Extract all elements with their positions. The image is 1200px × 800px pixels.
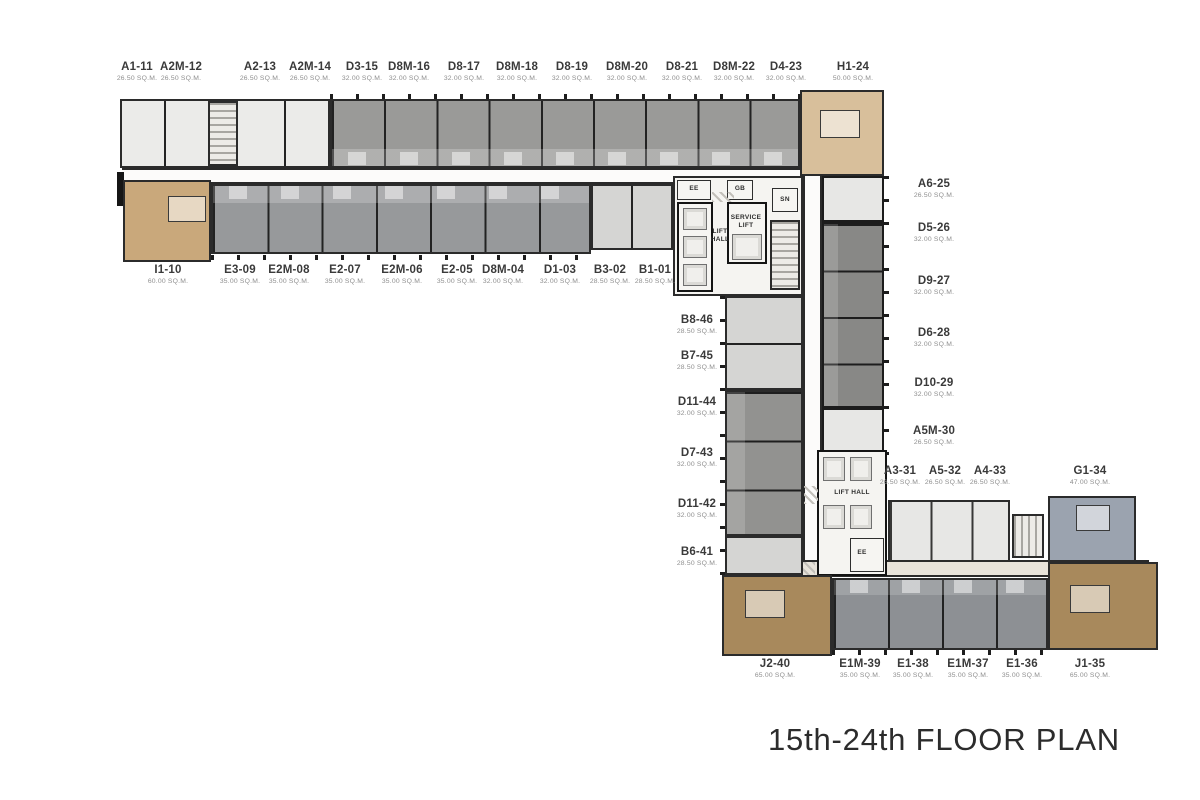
- balcony-ticks-mid: [720, 296, 725, 575]
- unit-area: 32.00 SQ.M.: [713, 75, 755, 82]
- unit-block-a6: [822, 176, 884, 222]
- unit-block-d-right: [822, 222, 884, 408]
- unit-label-D8-19: D8-1932.00 SQ.M.: [552, 61, 592, 82]
- unit-label-A6-25: A6-2526.50 SQ.M.: [914, 178, 954, 199]
- unit-id: E2-05: [437, 264, 477, 276]
- unit-label-J1-35: J1-3565.00 SQ.M.: [1070, 658, 1110, 679]
- unit-id: A2M-14: [289, 61, 331, 73]
- unit-id: A5M-30: [913, 425, 955, 437]
- unit-block-b6: [725, 536, 803, 575]
- unit-label-D4-23: D4-2332.00 SQ.M.: [766, 61, 806, 82]
- unit-area: 32.00 SQ.M.: [914, 289, 954, 296]
- unit-label-B3-02: B3-0228.50 SQ.M.: [590, 264, 630, 285]
- unit-area: 65.00 SQ.M.: [1070, 672, 1110, 679]
- unit-id: A1-11: [117, 61, 157, 73]
- unit-area: 32.00 SQ.M.: [606, 75, 648, 82]
- unit-label-E2M-06: E2M-0635.00 SQ.M.: [381, 264, 422, 285]
- unit-id: E1M-37: [947, 658, 988, 670]
- unit-area: 26.50 SQ.M.: [913, 439, 955, 446]
- unit-area: 32.00 SQ.M.: [677, 461, 717, 468]
- unit-label-D6-28: D6-2832.00 SQ.M.: [914, 327, 954, 348]
- unit-label-D8M-04: D8M-0432.00 SQ.M.: [482, 264, 524, 285]
- service-lift-car: [732, 234, 762, 260]
- unit-area: 35.00 SQ.M.: [381, 278, 422, 285]
- unit-id: D9-27: [914, 275, 954, 287]
- lift-car: [823, 505, 845, 529]
- bathroom-row-second: [213, 186, 589, 199]
- unit-area: 32.00 SQ.M.: [914, 341, 954, 348]
- lift-car: [850, 457, 872, 481]
- lift-hall-lower-label: LIFT HALL: [834, 489, 870, 497]
- unit-label-D3-15: D3-1532.00 SQ.M.: [342, 61, 382, 82]
- balcony-ticks-second: [211, 255, 591, 260]
- unit-label-D5-26: D5-2632.00 SQ.M.: [914, 222, 954, 243]
- unit-area: 26.50 SQ.M.: [880, 479, 920, 486]
- unit-area: 32.00 SQ.M.: [914, 391, 954, 398]
- unit-label-D8M-18: D8M-1832.00 SQ.M.: [496, 61, 538, 82]
- unit-id: E2-07: [325, 264, 365, 276]
- unit-label-D8-17: D8-1732.00 SQ.M.: [444, 61, 484, 82]
- gb-label: GB: [735, 185, 745, 193]
- unit-label-D10-29: D10-2932.00 SQ.M.: [914, 377, 954, 398]
- unit-area: 35.00 SQ.M.: [220, 278, 260, 285]
- unit-area: 32.00 SQ.M.: [444, 75, 484, 82]
- unit-area: 26.50 SQ.M.: [240, 75, 280, 82]
- unit-area: 32.00 SQ.M.: [677, 512, 717, 519]
- unit-id: E3-09: [220, 264, 260, 276]
- unit-label-D8M-20: D8M-2032.00 SQ.M.: [606, 61, 648, 82]
- unit-label-E2-05: E2-0535.00 SQ.M.: [437, 264, 477, 285]
- sn-label: SN: [780, 196, 790, 204]
- bathroom-row-top: [332, 152, 798, 165]
- unit-id: D8M-20: [606, 61, 648, 73]
- unit-id: I1-10: [148, 264, 188, 276]
- lift-car: [823, 457, 845, 481]
- unit-id: E2M-08: [268, 264, 309, 276]
- unit-id: E1M-39: [839, 658, 880, 670]
- unit-label-B8-46: B8-4628.50 SQ.M.: [677, 314, 717, 335]
- lift-car: [683, 264, 707, 286]
- service-lift-label: SERVICE LIFT: [729, 214, 763, 231]
- unit-id: A3-31: [880, 465, 920, 477]
- unit-id: B8-46: [677, 314, 717, 326]
- corridor-hatch-core: [804, 486, 818, 504]
- ee-upper-label: EE: [689, 185, 698, 193]
- unit-id: D8M-04: [482, 264, 524, 276]
- unit-area: 26.50 SQ.M.: [914, 192, 954, 199]
- unit-area: 35.00 SQ.M.: [325, 278, 365, 285]
- unit-label-D9-27: D9-2732.00 SQ.M.: [914, 275, 954, 296]
- unit-label-A3-31: A3-3126.50 SQ.M.: [880, 465, 920, 486]
- unit-label-D1-03: D1-0332.00 SQ.M.: [540, 264, 580, 285]
- unit-label-E1-38: E1-3835.00 SQ.M.: [893, 658, 933, 679]
- unit-id: A2M-12: [160, 61, 202, 73]
- balcony-ticks-right: [884, 176, 889, 455]
- unit-divider: [727, 343, 801, 345]
- unit-id: D7-43: [677, 447, 717, 459]
- unit-id: D11-44: [677, 396, 717, 408]
- unit-label-E1M-37: E1M-3735.00 SQ.M.: [947, 658, 988, 679]
- unit-label-E1M-39: E1M-3935.00 SQ.M.: [839, 658, 880, 679]
- stairwell-top-icon: [208, 101, 238, 166]
- unit-id: A5-32: [925, 465, 965, 477]
- unit-area: 32.00 SQ.M.: [482, 278, 524, 285]
- unit-id: J2-40: [755, 658, 795, 670]
- unit-id: D1-03: [540, 264, 580, 276]
- unit-block-a5m: [822, 408, 884, 455]
- unit-label-D8-21: D8-2132.00 SQ.M.: [662, 61, 702, 82]
- unit-area: 32.00 SQ.M.: [496, 75, 538, 82]
- unit-divider: [631, 186, 633, 248]
- unit-id: A4-33: [970, 465, 1010, 477]
- unit-label-G1-34: G1-3447.00 SQ.M.: [1070, 465, 1110, 486]
- unit-area: 32.00 SQ.M.: [677, 410, 717, 417]
- unit-area: 28.50 SQ.M.: [590, 278, 630, 285]
- unit-area: 28.50 SQ.M.: [677, 364, 717, 371]
- unit-label-A5M-30: A5M-3026.50 SQ.M.: [913, 425, 955, 446]
- unit-id: D8-17: [444, 61, 484, 73]
- unit-id: J1-35: [1070, 658, 1110, 670]
- unit-label-B1-01: B1-0128.50 SQ.M.: [635, 264, 675, 285]
- unit-id: D5-26: [914, 222, 954, 234]
- unit-label-J2-40: J2-4065.00 SQ.M.: [755, 658, 795, 679]
- unit-label-B7-45: B7-4528.50 SQ.M.: [677, 350, 717, 371]
- bathroom-row-bottom: [834, 580, 1046, 593]
- unit-area: 28.50 SQ.M.: [677, 328, 717, 335]
- unit-id: G1-34: [1070, 465, 1110, 477]
- unit-label-D8M-22: D8M-2232.00 SQ.M.: [713, 61, 755, 82]
- unit-block-a3-row: [888, 500, 1010, 562]
- unit-label-E2M-08: E2M-0835.00 SQ.M.: [268, 264, 309, 285]
- lift-car: [683, 208, 707, 230]
- unit-label-A1-11: A1-1126.50 SQ.M.: [117, 61, 157, 82]
- unit-area: 26.50 SQ.M.: [925, 479, 965, 486]
- interior-wall: [1070, 585, 1110, 613]
- unit-block-d-mid: [725, 390, 803, 536]
- unit-label-D7-43: D7-4332.00 SQ.M.: [677, 447, 717, 468]
- unit-label-D8M-16: D8M-1632.00 SQ.M.: [388, 61, 430, 82]
- unit-area: 32.00 SQ.M.: [552, 75, 592, 82]
- unit-area: 35.00 SQ.M.: [947, 672, 988, 679]
- unit-divider: [164, 101, 166, 166]
- unit-area: 32.00 SQ.M.: [766, 75, 806, 82]
- unit-area: 32.00 SQ.M.: [540, 278, 580, 285]
- unit-id: D8M-18: [496, 61, 538, 73]
- unit-label-D11-44: D11-4432.00 SQ.M.: [677, 396, 717, 417]
- ee-lower-label: EE: [857, 549, 866, 557]
- unit-area: 50.00 SQ.M.: [833, 75, 873, 82]
- unit-area: 32.00 SQ.M.: [342, 75, 382, 82]
- floor-plan-canvas: EE GB SN SERVICE LIFT LIFT HALL LIFT HAL…: [0, 0, 1200, 800]
- balcony-ticks-bottom: [832, 650, 1048, 655]
- unit-area: 47.00 SQ.M.: [1070, 479, 1110, 486]
- unit-id: E1-36: [1002, 658, 1042, 670]
- unit-area: 32.00 SQ.M.: [388, 75, 430, 82]
- interior-wall: [745, 590, 785, 618]
- unit-id: B3-02: [590, 264, 630, 276]
- unit-area: 35.00 SQ.M.: [1002, 672, 1042, 679]
- page-title: 15th-24th FLOOR PLAN: [768, 722, 1120, 758]
- interior-wall: [168, 196, 206, 222]
- unit-id: D8M-22: [713, 61, 755, 73]
- unit-id: B6-41: [677, 546, 717, 558]
- unit-id: D10-29: [914, 377, 954, 389]
- unit-divider: [284, 101, 286, 166]
- unit-area: 26.50 SQ.M.: [160, 75, 202, 82]
- unit-label-E2-07: E2-0735.00 SQ.M.: [325, 264, 365, 285]
- unit-id: B1-01: [635, 264, 675, 276]
- ee-room-lower: [850, 538, 884, 572]
- unit-area: 65.00 SQ.M.: [755, 672, 795, 679]
- stairwell-core-icon: [770, 220, 800, 290]
- unit-id: D8M-16: [388, 61, 430, 73]
- unit-id: B7-45: [677, 350, 717, 362]
- unit-label-H1-24: H1-2450.00 SQ.M.: [833, 61, 873, 82]
- unit-area: 26.50 SQ.M.: [289, 75, 331, 82]
- interior-wall: [1076, 505, 1110, 531]
- unit-id: D11-42: [677, 498, 717, 510]
- stairwell-lower-icon: [1012, 514, 1044, 558]
- interior-wall: [820, 110, 860, 138]
- unit-area: 35.00 SQ.M.: [893, 672, 933, 679]
- lift-hall-upper-label: LIFT HALL: [707, 228, 733, 245]
- unit-id: E1-38: [893, 658, 933, 670]
- unit-area: 60.00 SQ.M.: [148, 278, 188, 285]
- unit-label-A4-33: A4-3326.50 SQ.M.: [970, 465, 1010, 486]
- unit-id: D4-23: [766, 61, 806, 73]
- unit-id: H1-24: [833, 61, 873, 73]
- unit-label-E3-09: E3-0935.00 SQ.M.: [220, 264, 260, 285]
- unit-label-A2-13: A2-1326.50 SQ.M.: [240, 61, 280, 82]
- unit-label-A2M-12: A2M-1226.50 SQ.M.: [160, 61, 202, 82]
- unit-id: D3-15: [342, 61, 382, 73]
- unit-label-B6-41: B6-4128.50 SQ.M.: [677, 546, 717, 567]
- unit-area: 35.00 SQ.M.: [268, 278, 309, 285]
- unit-area: 32.00 SQ.M.: [662, 75, 702, 82]
- unit-id: A2-13: [240, 61, 280, 73]
- unit-id: D6-28: [914, 327, 954, 339]
- corridor-hatch-upper: [712, 192, 734, 202]
- unit-area: 26.50 SQ.M.: [117, 75, 157, 82]
- unit-id: D8-19: [552, 61, 592, 73]
- unit-label-I1-10: I1-1060.00 SQ.M.: [148, 264, 188, 285]
- unit-label-A2M-14: A2M-1426.50 SQ.M.: [289, 61, 331, 82]
- unit-area: 26.50 SQ.M.: [970, 479, 1010, 486]
- unit-area: 28.50 SQ.M.: [677, 560, 717, 567]
- unit-area: 32.00 SQ.M.: [914, 236, 954, 243]
- unit-label-E1-36: E1-3635.00 SQ.M.: [1002, 658, 1042, 679]
- unit-area: 35.00 SQ.M.: [437, 278, 477, 285]
- unit-id: A6-25: [914, 178, 954, 190]
- unit-area: 28.50 SQ.M.: [635, 278, 675, 285]
- unit-id: E2M-06: [381, 264, 422, 276]
- lift-car: [850, 505, 872, 529]
- unit-id: D8-21: [662, 61, 702, 73]
- unit-label-D11-42: D11-4232.00 SQ.M.: [677, 498, 717, 519]
- lift-car: [683, 236, 707, 258]
- unit-label-A5-32: A5-3226.50 SQ.M.: [925, 465, 965, 486]
- unit-area: 35.00 SQ.M.: [839, 672, 880, 679]
